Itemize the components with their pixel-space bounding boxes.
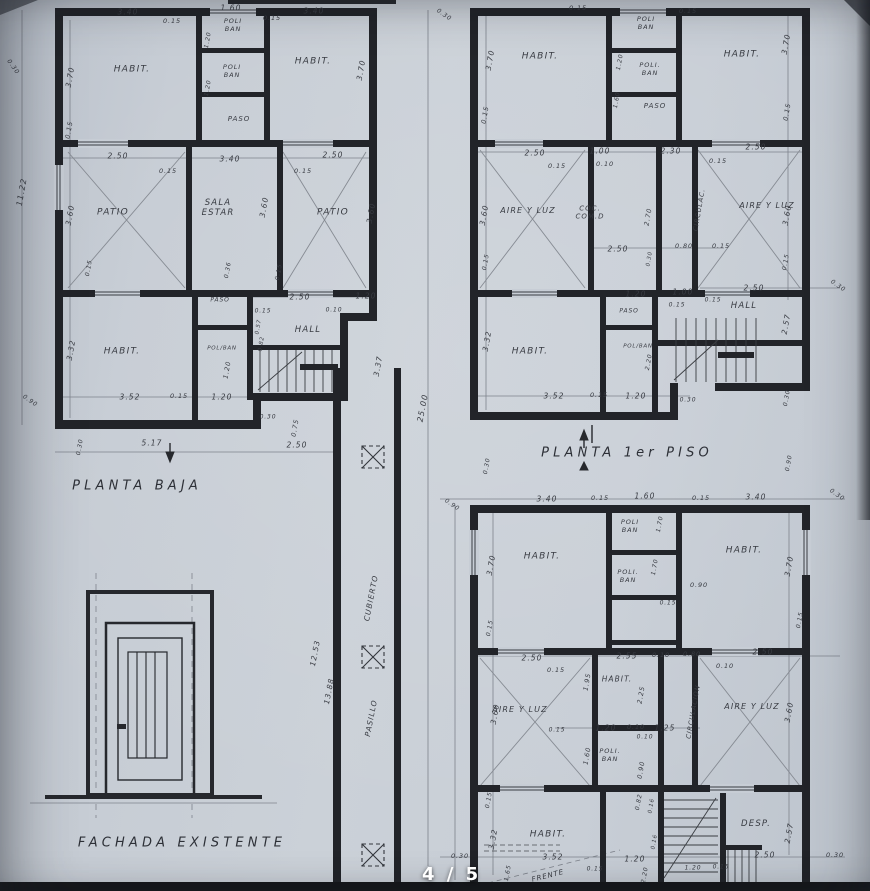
dim-label: 0.15 xyxy=(159,168,177,176)
dim-label: 0.15 xyxy=(660,599,677,606)
dim-label: 0.15 xyxy=(163,18,181,26)
dim-label: 3.40 xyxy=(220,155,241,164)
room-label: POLI BAN xyxy=(637,16,655,32)
dim-label: 1.20 xyxy=(685,864,702,871)
dim-label: 3.40 xyxy=(537,495,558,504)
photo-top-edge xyxy=(228,0,396,4)
room-label: POLI. BAN xyxy=(617,569,638,585)
room-label: POL/BAN xyxy=(623,344,653,351)
dim-label: 1.00 xyxy=(673,288,694,297)
room-label: POLI BAN xyxy=(223,64,241,80)
dim-label: 0.30 xyxy=(451,853,469,861)
dim-label: 1.20 xyxy=(626,290,647,299)
fachada-title: FACHADA EXISTENTE xyxy=(78,836,286,851)
dim-label: 0.15 xyxy=(587,865,604,872)
dim-label: 1.20 xyxy=(626,392,647,401)
dim-label: 0.10 xyxy=(627,724,645,732)
dim-label: 1.20 xyxy=(356,292,377,301)
dim-label: 0.90 xyxy=(690,582,708,590)
room-label: HALL xyxy=(731,301,757,311)
dim-label: 2.50 xyxy=(290,293,311,302)
planta-superior-openings xyxy=(469,530,811,793)
dim-label: 0.15 xyxy=(547,667,565,675)
facade-door-drawing xyxy=(45,592,262,799)
dim-label: 2.50 xyxy=(744,284,765,293)
dim-label: 0.15 xyxy=(679,8,697,16)
room-label: PASO xyxy=(644,102,667,110)
dim-label: 0.15 xyxy=(712,243,730,251)
dim-label: 0.10 xyxy=(652,652,670,660)
dim-label: 2.50 xyxy=(525,149,546,158)
room-label: COC. COM.D xyxy=(576,205,605,222)
blueprint-photo: HABIT.POLI BANPOLI BANPASOHABIT.PATIOSAL… xyxy=(0,0,870,891)
dim-label: 1.20 xyxy=(212,393,233,402)
column-markers xyxy=(362,446,384,866)
dim-label: 2.50 xyxy=(608,245,629,254)
room-label: AIRE Y LUZ xyxy=(724,702,779,712)
room-label: POLI BAN xyxy=(224,18,242,34)
planta-baja-title: PLANTA BAJA xyxy=(72,479,202,494)
dim-label: 0.15 xyxy=(255,307,272,314)
dim-label: 1.60 xyxy=(635,492,656,501)
dim-label: 0.10 xyxy=(637,733,654,740)
dim-label: 0.10 xyxy=(716,663,734,671)
dim-label: 2.50 xyxy=(323,151,344,160)
room-label: HABIT. xyxy=(522,52,559,63)
planta-1er-piso-title: PLANTA 1er PISO xyxy=(541,446,713,461)
dim-label: 1.20 xyxy=(596,724,617,733)
dim-label: 0.15 xyxy=(294,168,312,176)
room-label: HALL xyxy=(295,325,321,335)
dim-label: 1.25 xyxy=(655,724,676,733)
room-label: AIRE Y LUZ xyxy=(500,206,555,216)
room-label: HABIT. xyxy=(602,675,633,684)
dim-label: 1.60 xyxy=(221,4,242,13)
dim-label: 2.50 xyxy=(753,648,774,657)
page-indicator: 4 / 5 xyxy=(422,864,481,885)
dim-label: 0.10 xyxy=(326,306,343,313)
room-label: PASO xyxy=(228,115,251,123)
dim-label: 2.50 xyxy=(755,851,776,860)
dim-label: 2.50 xyxy=(522,654,543,663)
dim-label: 0.15 xyxy=(713,863,730,870)
dim-label: 0.80 xyxy=(675,243,693,251)
room-label: HABIT. xyxy=(104,347,141,358)
room-label: POLI BAN xyxy=(621,519,639,535)
dim-label: 2.50 xyxy=(287,441,308,450)
dim-label: 2.30 xyxy=(661,147,682,156)
room-label: HABIT. xyxy=(512,347,549,358)
dim-label: 0.15 xyxy=(263,15,281,23)
dim-label: 3.52 xyxy=(543,853,564,862)
dim-label: 0.30 xyxy=(260,413,277,420)
dim-label: 3.40 xyxy=(118,8,139,17)
room-label: HABIT. xyxy=(524,552,561,563)
room-label: HABIT. xyxy=(295,57,332,68)
dim-label: 2.50 xyxy=(108,152,129,161)
room-label: HABIT. xyxy=(530,830,567,841)
dim-label: 0.15 xyxy=(705,296,722,303)
dim-label: 2.55 xyxy=(617,652,638,661)
dim-label: 0.15 xyxy=(548,163,566,171)
photo-edge-shadow-right xyxy=(856,0,870,520)
dim-label: 0.80 xyxy=(683,651,701,659)
dim-label: 0.15 xyxy=(170,393,188,401)
dim-label: 0.10 xyxy=(596,161,614,169)
floor-plan-drawing xyxy=(0,0,870,891)
room-label: DESP. xyxy=(741,819,771,829)
dim-label: 0.15 xyxy=(569,5,587,13)
photo-corner-shadow-tl xyxy=(0,0,38,15)
dim-label: 0.15 xyxy=(669,301,686,308)
dim-label: 3.40 xyxy=(304,7,325,16)
room-label: POLI. BAN xyxy=(599,748,620,764)
dim-label: 1.00 xyxy=(590,147,611,156)
dim-label: 2.50 xyxy=(746,143,767,152)
planta-baja-openings xyxy=(54,7,333,298)
dim-label: 3.40 xyxy=(746,493,767,502)
dim-label: 0.30 xyxy=(680,396,697,403)
dim-label: 0.15 xyxy=(591,495,609,503)
dim-label: 0.15 xyxy=(709,158,727,166)
planta-1er-piso-stairs xyxy=(674,318,756,382)
room-label: SALA ESTAR xyxy=(202,198,235,218)
dim-label: 0.15 xyxy=(549,726,566,733)
dim-label: 0.15 xyxy=(590,392,608,400)
dim-label: 0.30 xyxy=(826,852,844,860)
room-label: POL/BAN xyxy=(207,346,237,353)
room-label: PATIO xyxy=(317,208,349,219)
planta-baja-stairs xyxy=(258,350,338,392)
dim-label: 5.17 xyxy=(142,439,163,448)
dim-label: 0.15 xyxy=(692,495,710,503)
dim-label: 3.52 xyxy=(544,392,565,401)
room-label: PASO xyxy=(210,296,229,303)
dim-label: 3.52 xyxy=(120,393,141,402)
room-label: HABIT. xyxy=(114,65,151,76)
room-label: PASO xyxy=(619,307,638,314)
room-label: POLI. BAN xyxy=(639,62,660,78)
room-label: HABIT. xyxy=(726,546,763,557)
room-label: PATIO xyxy=(97,208,129,219)
pasillo-walls xyxy=(333,368,401,884)
dim-label: 1.20 xyxy=(625,855,646,864)
room-label: HABIT. xyxy=(724,50,761,61)
planta-superior-stairs xyxy=(664,798,762,884)
